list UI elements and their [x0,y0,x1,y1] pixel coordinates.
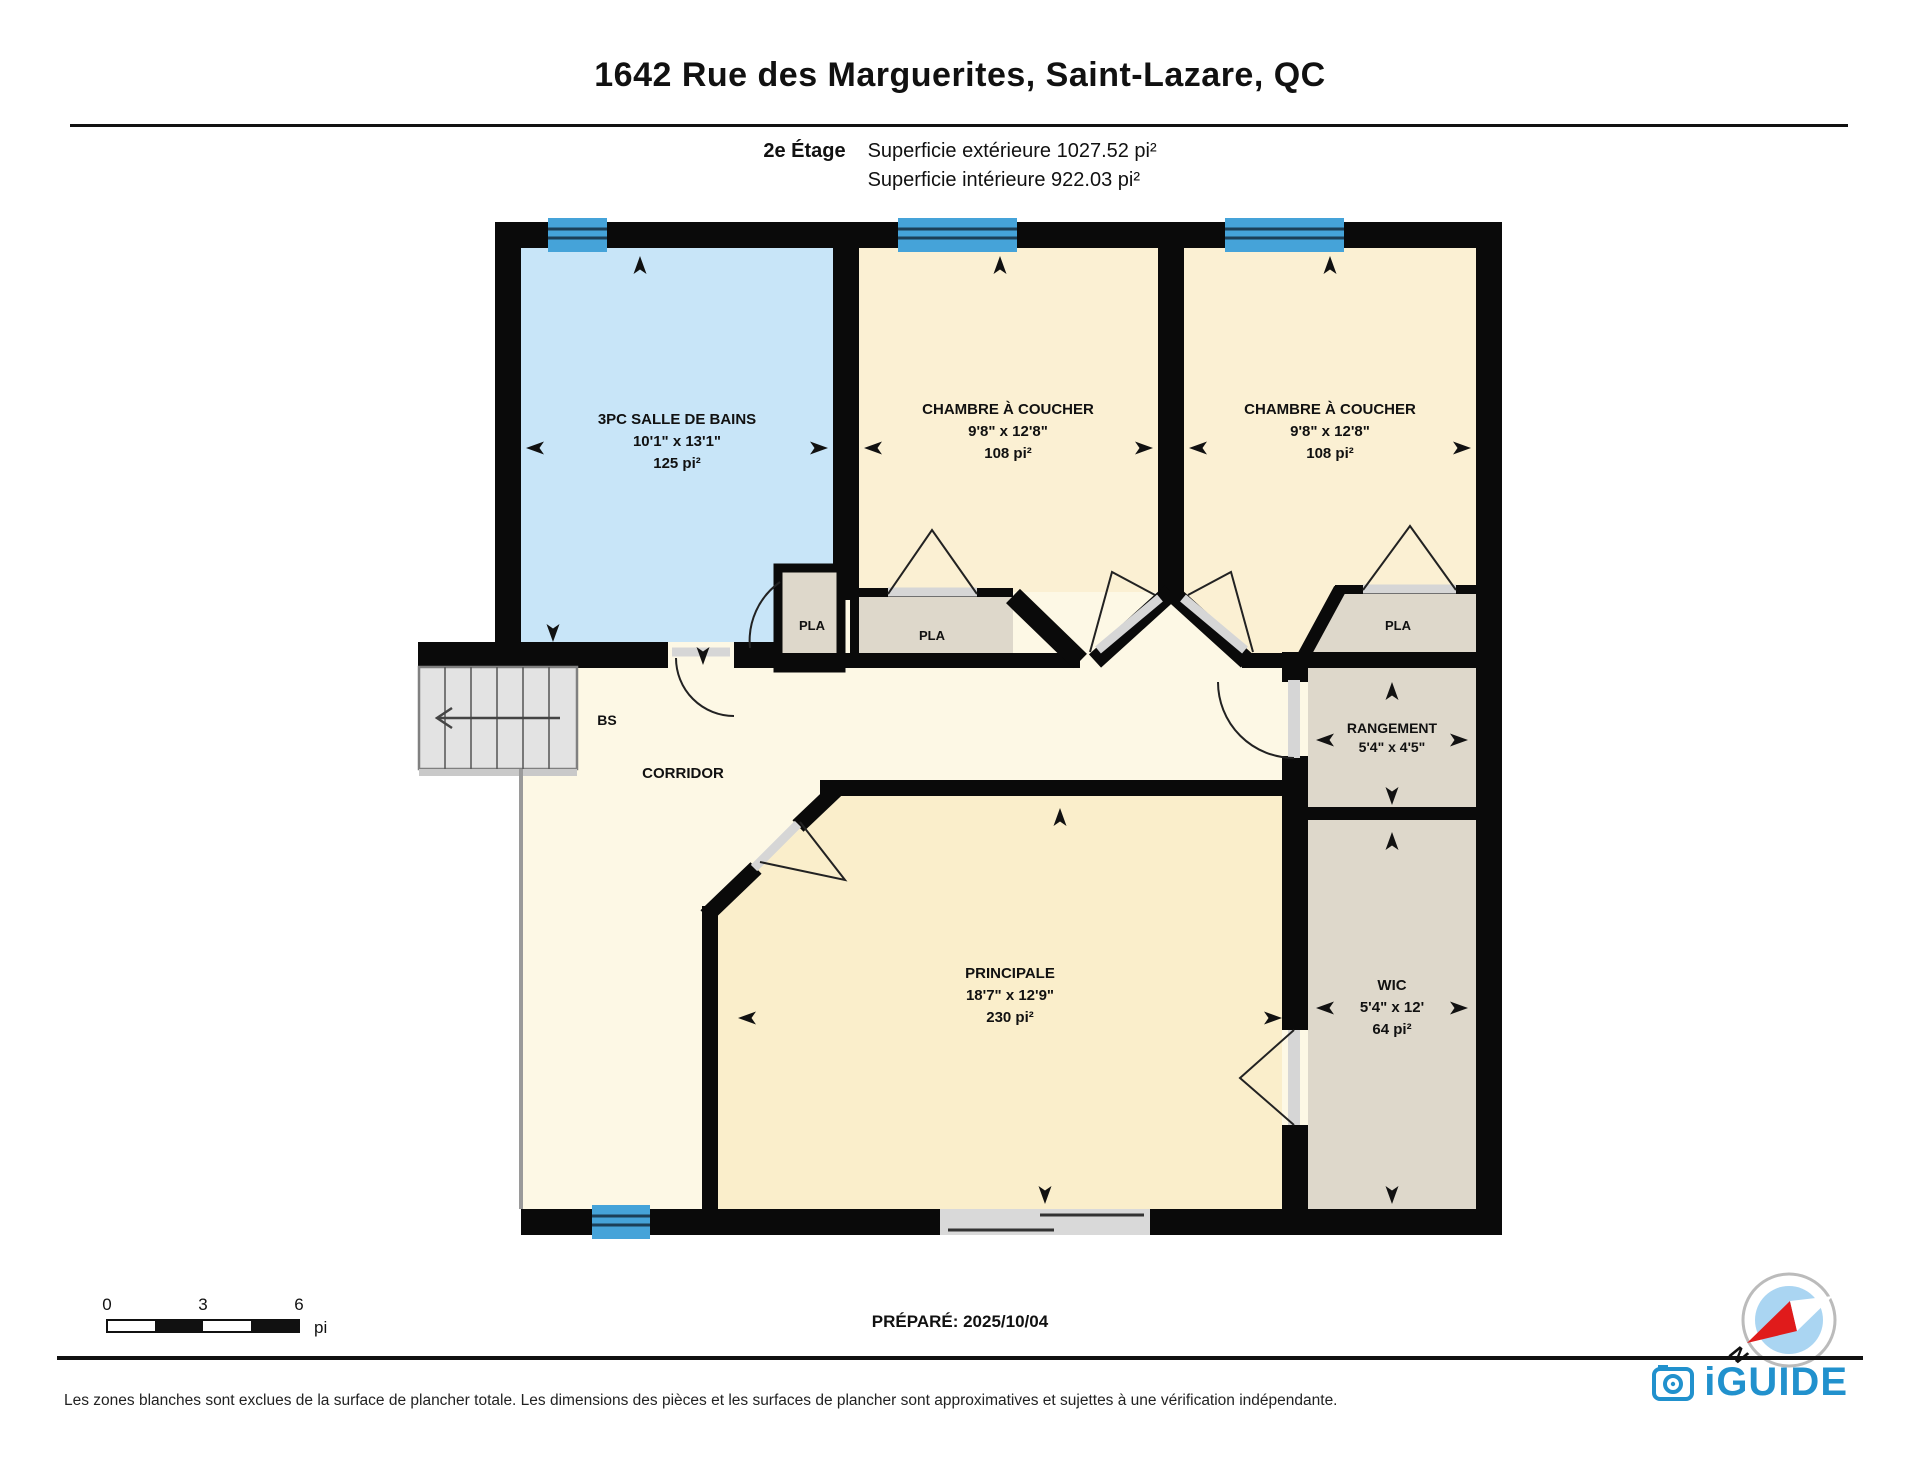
window-bedroom-2 [1225,218,1344,252]
principale-area: 230 pi² [986,1009,1034,1026]
bedroom2-area: 108 pi² [1306,445,1354,462]
principale-name: PRINCIPALE [965,965,1055,982]
bedroom1-dims: 9'8" x 12'8" [968,423,1048,440]
wall-rangement-top [1285,652,1476,668]
camera-icon [1650,1363,1696,1403]
wall-wic-left-a [1282,820,1308,1030]
wall-bath-bottom-a [495,642,668,668]
principale-dims: 18'7" x 12'9" [966,987,1054,1004]
brand-logo: iGUIDE [1650,1360,1848,1405]
wall-wic-top [1282,807,1476,820]
closet2-label: PLA [919,628,946,643]
rangement-dims: 5'4" x 4'5" [1359,739,1426,755]
wic-name: WIC [1377,977,1406,994]
bedroom1-name: CHAMBRE À COUCHER [922,401,1094,418]
wall-principale-left [702,906,718,1209]
prepared-date: PRÉPARÉ: 2025/10/04 [0,1312,1920,1332]
brand-name: iGUIDE [1704,1360,1848,1405]
floor-plan: 3PC SALLE DE BAINS 10'1" x 13'1" 125 pi²… [0,0,1920,1483]
window-bathroom [548,218,607,252]
stairs-label: BS [597,712,616,728]
closet1-label: PLA [799,618,826,633]
wic-dims: 5'4" x 12' [1360,999,1424,1016]
bathroom-dims: 10'1" x 13'1" [633,433,721,450]
bedroom1-area: 108 pi² [984,445,1032,462]
window-bottom [592,1205,650,1239]
wall-rangement-left-a [1282,652,1308,682]
footer-divider [57,1356,1863,1360]
sliding-door [940,1209,1150,1235]
bedroom2-name: CHAMBRE À COUCHER [1244,401,1416,418]
wic-area: 64 pi² [1372,1021,1411,1038]
corridor-label: CORRIDOR [642,765,724,782]
window-bedroom-1 [898,218,1017,252]
bedroom2-dims: 9'8" x 12'8" [1290,423,1370,440]
wall-right [1476,222,1502,1235]
disclaimer-text: Les zones blanches sont exclues de la su… [64,1392,1338,1410]
wall-left [495,222,521,668]
room-bedroom-1 [859,248,1158,592]
stairs [419,667,577,776]
wall-divider-bed1-bed2 [1158,222,1184,592]
rangement-name: RANGEMENT [1347,720,1438,736]
wall-divider-bath-bed1 [833,222,859,600]
wall-corridor-top-a [770,653,1080,668]
bathroom-name: 3PC SALLE DE BAINS [598,411,756,428]
corridor-open-edge [519,769,523,1209]
wall-principale-top [820,780,1282,796]
bathroom-area: 125 pi² [653,455,701,472]
closet3-label: PLA [1385,618,1412,633]
wall-wic-left-b [1282,1125,1308,1209]
